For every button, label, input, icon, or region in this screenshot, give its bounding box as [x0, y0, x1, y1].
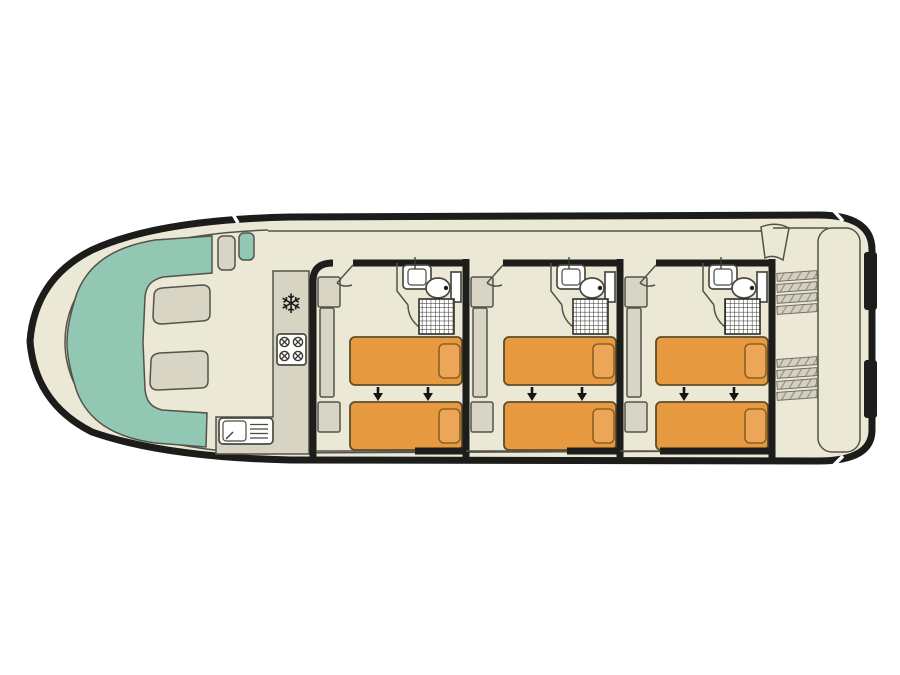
toilet-tank: [451, 272, 461, 302]
wardrobe: [471, 277, 493, 307]
bow-table-2: [150, 351, 208, 390]
bed-pillow: [593, 344, 614, 378]
boat-deck-plan: ❄: [0, 0, 900, 675]
wardrobe: [471, 402, 493, 432]
toilet-tank: [605, 272, 615, 302]
shower: [573, 299, 608, 334]
wardrobe: [318, 277, 340, 307]
fridge-icon: ❄: [280, 289, 303, 320]
wardrobe: [473, 308, 487, 397]
deck-plan-drawing: ❄: [0, 0, 900, 675]
toilet-flush-dot: [750, 286, 754, 290]
stove: [277, 334, 306, 365]
bed-pillow: [439, 409, 460, 443]
bed-pillow: [745, 344, 766, 378]
bed-pillow: [745, 409, 766, 443]
fender: [864, 360, 877, 418]
toilet-flush-dot: [444, 286, 448, 290]
toilet-tank: [757, 272, 767, 302]
toilet-flush-dot: [598, 286, 602, 290]
shower: [725, 299, 760, 334]
bed-pillow: [439, 344, 460, 378]
wardrobe: [625, 402, 647, 432]
shower: [419, 299, 454, 334]
wardrobe: [320, 308, 334, 397]
helm-seat-1: [218, 236, 235, 270]
wardrobe: [627, 308, 641, 397]
helm-seat-2: [239, 233, 254, 260]
wardrobe: [318, 402, 340, 432]
wardrobe: [625, 277, 647, 307]
bow-table-1: [153, 285, 210, 324]
bed-pillow: [593, 409, 614, 443]
fender: [864, 252, 877, 310]
galley-sink: [219, 418, 273, 444]
